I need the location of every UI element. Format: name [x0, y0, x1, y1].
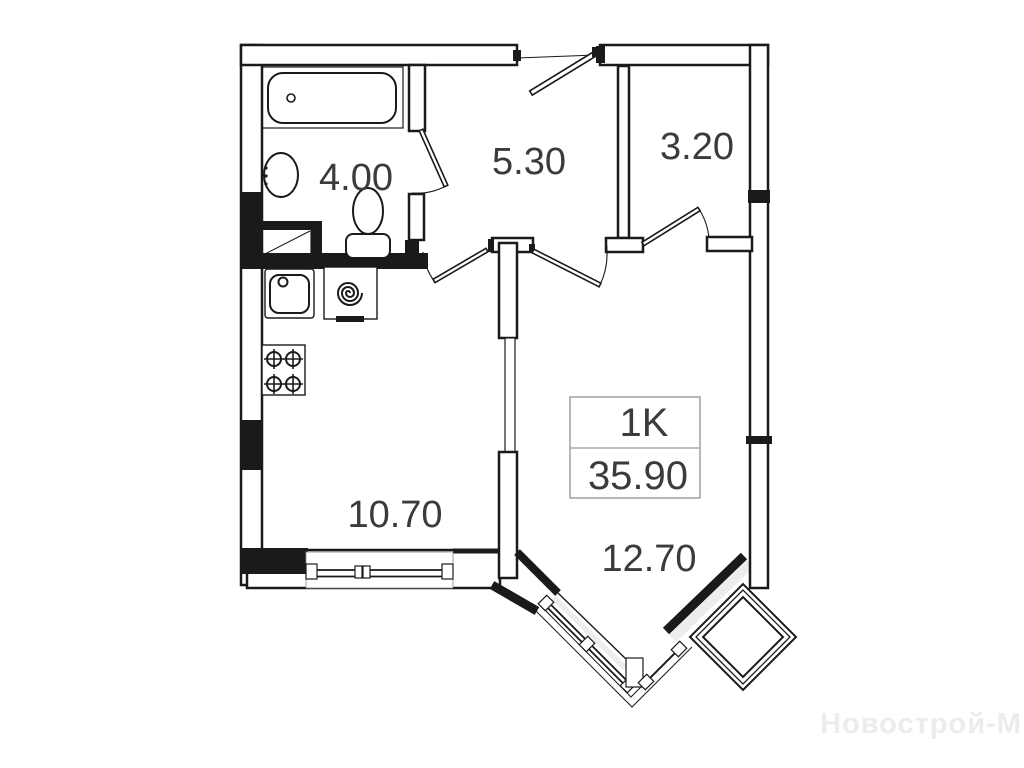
bay-window-right: [638, 641, 687, 690]
hallway-area-label: 5.30: [492, 141, 566, 183]
floor-plan-drawing: 4.00 5.30 3.20 10.70 12.70 1K 35.90 Ново…: [0, 0, 1024, 768]
storage-door: [642, 207, 709, 245]
living-room-area-label: 12.70: [601, 538, 696, 580]
storage-area-label: 3.20: [660, 126, 734, 168]
washbasin-icon: [264, 153, 298, 197]
bathroom-door: [412, 129, 448, 193]
unit-type-label: 1K: [620, 401, 669, 445]
total-area-label: 35.90: [588, 454, 688, 498]
room-labels: 4.00 5.30 3.20 10.70 12.70: [319, 126, 734, 580]
kitchen-area-label: 10.70: [347, 494, 442, 536]
living-room-door: [532, 241, 607, 287]
kitchen-door: [423, 248, 488, 282]
toilet-base-icon: [346, 234, 390, 258]
kitchen-sink-icon: [270, 275, 309, 313]
entrance-door: [513, 47, 600, 95]
bay-window-left: [538, 595, 643, 693]
watermark: Новострой-М: [820, 708, 1022, 740]
faucet-icon: [279, 278, 288, 287]
kitchen-window: [306, 552, 453, 588]
bathroom-area-label: 4.00: [319, 157, 393, 199]
floor-plan-page: 4.00 5.30 3.20 10.70 12.70 1K 35.90 Ново…: [0, 0, 1024, 768]
kitchen-fixtures: [262, 267, 377, 395]
area-info-box: 1K 35.90: [570, 397, 700, 498]
bathtub-drain-icon: [287, 94, 295, 102]
